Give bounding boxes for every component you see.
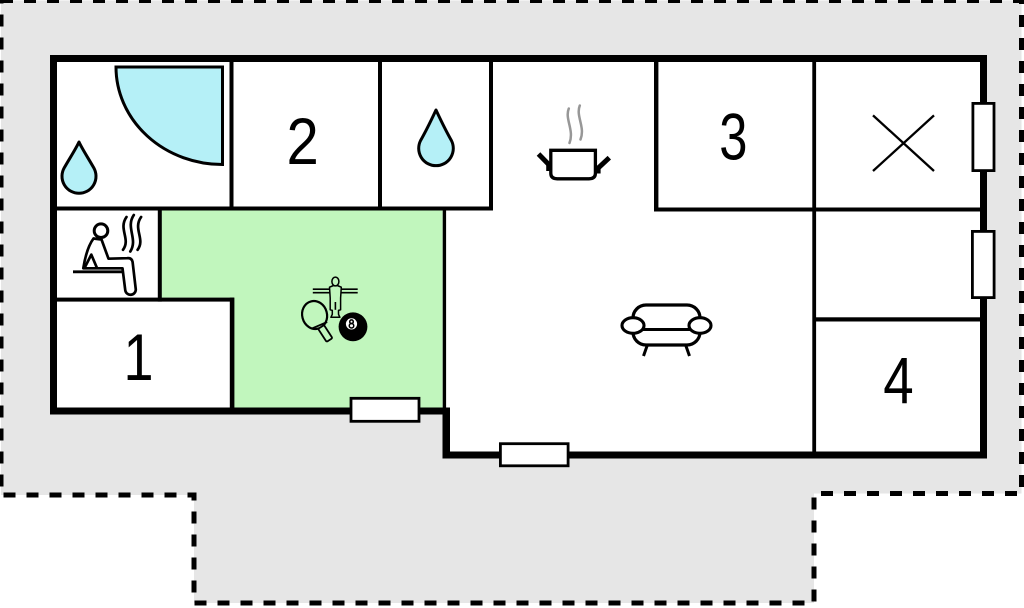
svg-text:3: 3 (719, 101, 747, 174)
svg-text:1: 1 (124, 321, 154, 394)
svg-text:2: 2 (287, 105, 319, 178)
svg-text:4: 4 (883, 345, 913, 418)
